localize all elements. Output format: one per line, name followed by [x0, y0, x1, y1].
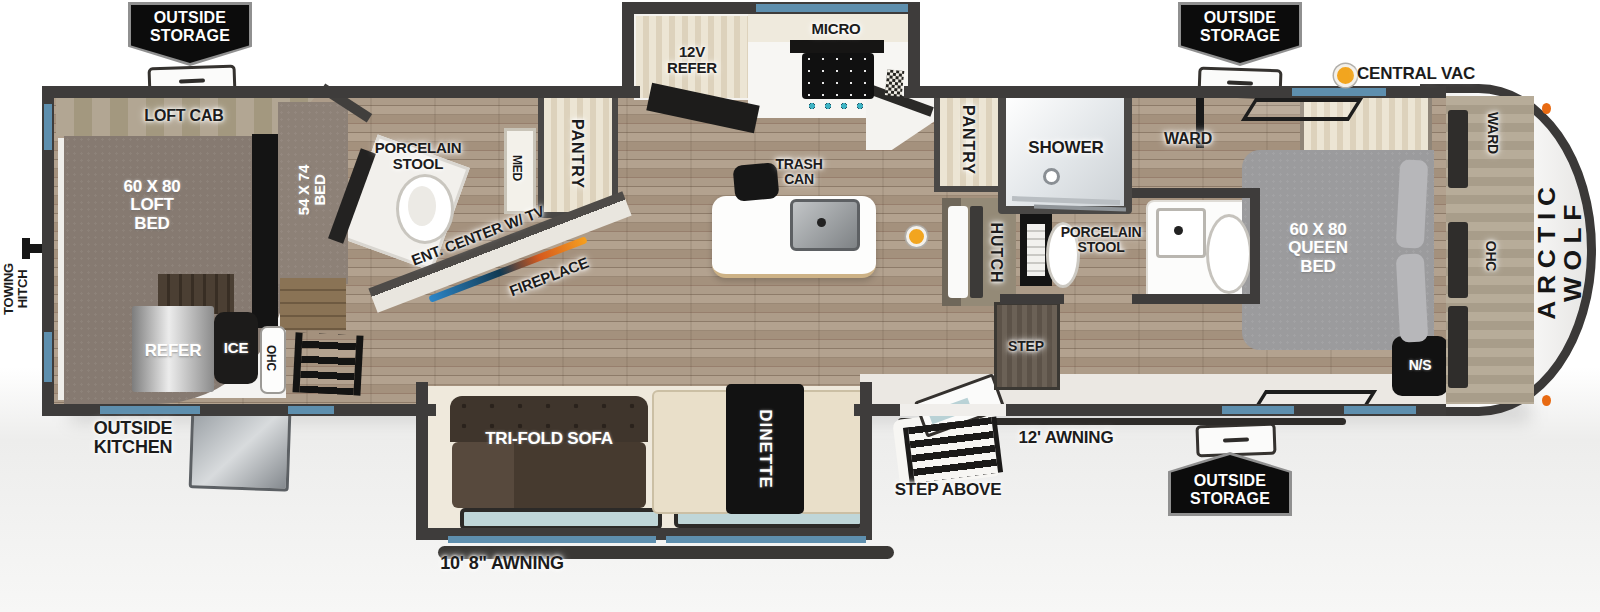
stove-icon	[802, 53, 874, 99]
hutch-counter	[948, 206, 968, 298]
badge-outside-storage-bottom-right: OUTSIDE STORAGE	[1168, 452, 1292, 516]
label-loft-bed: 60 X 80 LOFT BED	[123, 178, 180, 233]
label-night-stand: N/S	[1409, 358, 1432, 373]
label-brand: ARCTIC WOLF	[1534, 180, 1586, 319]
slide-wall-right	[860, 382, 872, 540]
badge-label: OUTSIDE STORAGE	[1200, 9, 1280, 44]
label-ice: ICE	[224, 340, 248, 356]
loft-divider-wall	[252, 134, 278, 328]
hatch-handle	[179, 79, 205, 84]
floorplan-canvas: OUTSIDE STORAGE OUTSIDE STORAGE OUTSIDE …	[0, 0, 1600, 612]
vanity-sink-oval	[1206, 214, 1252, 294]
pillow-top	[1396, 159, 1429, 248]
bath-wall-bottom-right	[1132, 294, 1260, 304]
label-ohc-front: OHC	[1482, 241, 1497, 272]
label-porcelain-stool-left: PORCELAIN STOOL	[375, 140, 462, 172]
label-micro: MICRO	[812, 21, 861, 37]
label-refer: REFER	[145, 342, 202, 360]
hutch-tv-slab	[970, 206, 983, 298]
bath-wall-bottom-left	[1000, 294, 1064, 304]
front-ward-door-3	[1448, 306, 1468, 388]
slide-window-blue-2	[666, 536, 866, 543]
window-top-right	[1292, 88, 1386, 96]
label-awning-slide: 10' 8" AWNING	[440, 554, 564, 573]
label-bed-54: 54 X 74 BED	[296, 165, 328, 215]
entry-steps-icon	[903, 416, 1003, 483]
central-vac-floor-dot	[906, 226, 927, 247]
front-ward-door-2	[1448, 222, 1468, 298]
label-hutch: HUTCH	[987, 223, 1004, 284]
label-pantry-right: PANTRY	[959, 105, 976, 175]
shower-drain	[1043, 168, 1060, 185]
wall-top-left	[42, 86, 640, 98]
label-dinette: DINETTE	[756, 409, 774, 489]
sink-drain	[817, 218, 826, 227]
marker-light-top	[1542, 103, 1551, 114]
badge-face: OUTSIDE STORAGE	[131, 5, 249, 63]
window-bottom-1	[100, 406, 200, 414]
marker-light-bottom	[1542, 395, 1551, 406]
dinette-bench-left	[652, 390, 732, 514]
slide-wall-left	[416, 382, 428, 540]
towel-icon	[1027, 224, 1045, 276]
rear-ladder-icon	[292, 332, 363, 395]
badge-face: OUTSIDE STORAGE	[1181, 5, 1299, 63]
label-step: STEP	[1008, 339, 1044, 354]
towing-hitch-handle	[22, 238, 30, 259]
window-bottom-3	[1222, 406, 1294, 414]
label-loft-cab: LOFT CAB	[144, 107, 223, 124]
bath-wall-right	[1250, 188, 1260, 304]
window-left-2	[44, 332, 52, 382]
label-ward-front: WARD	[1484, 112, 1499, 154]
burners-icon	[806, 100, 870, 112]
label-ward-bath: WARD	[1164, 130, 1212, 147]
outside-kitchen-flap	[189, 408, 292, 491]
kitchen-slide-wall-right	[908, 2, 920, 98]
label-refer-12v: 12V REFER	[667, 44, 717, 76]
range-hood	[790, 40, 884, 53]
hatch-handle	[1223, 438, 1249, 443]
central-vac-legend-dot	[1334, 64, 1357, 87]
label-ohc-left: OHC	[265, 345, 278, 371]
trash-can-icon	[733, 162, 780, 202]
kitchen-slide-window	[756, 4, 908, 12]
window-bottom-4	[1344, 406, 1416, 414]
label-central-vac: CENTRAL VAC	[1357, 65, 1475, 83]
sofa-seat	[452, 442, 646, 508]
label-trash-can: TRASH CAN	[775, 157, 822, 187]
label-outside-kitchen: OUTSIDE KITCHEN	[94, 419, 173, 458]
loft-steps-wood	[280, 278, 346, 330]
label-queen-bed: 60 X 80 QUEEN BED	[1288, 221, 1347, 276]
hatch-handle	[1227, 81, 1253, 86]
kitchen-slide-wall-left	[622, 2, 634, 98]
window-left-1	[44, 104, 52, 150]
badge-outside-storage-top-left: OUTSIDE STORAGE	[128, 2, 252, 66]
badge-label: OUTSIDE STORAGE	[150, 9, 230, 44]
label-shower: SHOWER	[1028, 139, 1103, 157]
front-ward-door-1	[1448, 110, 1468, 188]
label-tri-fold-sofa: TRI-FOLD SOFA	[485, 430, 613, 448]
label-med: MED	[511, 155, 524, 181]
label-porcelain-stool-right: PORCELAIN STOOL	[1061, 225, 1142, 255]
entry-opening	[900, 404, 1006, 416]
label-pantry-left: PANTRY	[568, 119, 585, 189]
bath-wall-top	[1132, 188, 1260, 198]
slide-window-sill-1	[460, 508, 662, 530]
badge-face: OUTSIDE STORAGE	[1171, 455, 1289, 513]
label-towing-hitch: TOWING HITCH	[2, 263, 30, 315]
badge-outside-storage-top-right: OUTSIDE STORAGE	[1178, 2, 1302, 66]
dish-towel-icon	[885, 69, 905, 97]
badge-label: OUTSIDE STORAGE	[1190, 472, 1270, 507]
vanity-faucet	[1174, 226, 1183, 235]
window-bottom-2	[288, 406, 334, 414]
roof-vent-top	[1241, 98, 1363, 121]
toilet-left-seat	[408, 186, 436, 226]
pillow-bottom	[1396, 253, 1429, 342]
slide-window-blue-1	[448, 536, 656, 543]
label-awning-main: 12' AWNING	[1019, 429, 1114, 447]
label-step-above: STEP ABOVE	[895, 481, 1002, 499]
